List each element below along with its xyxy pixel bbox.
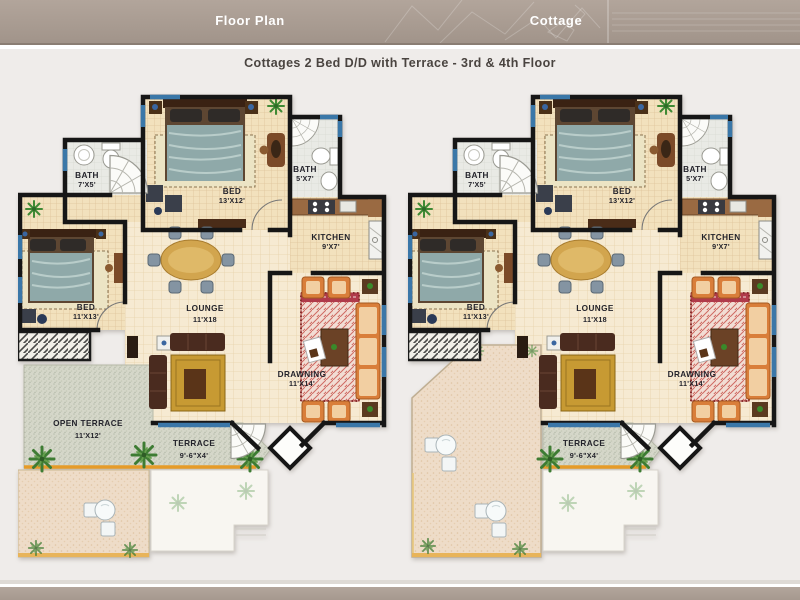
planter-ledge (408, 332, 480, 360)
bed-top-label: BED (223, 187, 242, 196)
lower-terrace-area (151, 470, 268, 551)
bath-left-label: BATH (75, 171, 99, 180)
tab-floor-plan[interactable]: Floor Plan (180, 13, 320, 28)
lower-terrace-area (543, 470, 658, 551)
armchair (302, 401, 324, 422)
open-terrace-label: OPEN TERRACE (53, 419, 123, 428)
tab-cottage[interactable]: Cottage (488, 13, 624, 28)
floor-plan-right: BED 13'X12' BATH 7'X5' BATH 5'X7' KITCHE… (408, 93, 788, 589)
armchair (718, 277, 740, 298)
coffee-table (574, 369, 596, 399)
entrance-porch (660, 428, 700, 468)
shrub-icon (123, 543, 137, 557)
palm-tree-icon (30, 447, 54, 471)
armchair (718, 401, 740, 422)
shrub-icon (513, 542, 527, 556)
palm-tree-icon (538, 447, 562, 471)
bath-right-label: BATH (683, 165, 707, 174)
floor-plan-left: BED 13'X12' BATH 7'X5' BATH 5'X7' KITCHE… (18, 93, 398, 589)
terrace-label: TERRACE (173, 439, 216, 448)
lounge-size: 11'X18 (193, 315, 217, 324)
drawing-label: DRAWNING (668, 370, 717, 379)
page: Floor Plan Cottage Cottages 2 Bed D/D wi… (0, 0, 800, 600)
fridge (369, 221, 382, 259)
kitchen-label: KITCHEN (311, 233, 350, 242)
bed-left-size: 11'X13' (463, 312, 489, 321)
bath-left-size: 7'X5' (468, 180, 486, 189)
coffee-table (184, 369, 206, 399)
stove (308, 200, 335, 214)
bath-right-size: 5'X7' (686, 174, 704, 183)
bath-left-size: 7'X5' (78, 180, 96, 189)
page-title: Cottages 2 Bed D/D with Terrace - 3rd & … (0, 56, 800, 70)
bed-left-label: BED (467, 303, 486, 312)
shrub-icon (421, 539, 435, 553)
bed-top-label: BED (613, 187, 632, 196)
bed-top-size: 13'X12' (219, 196, 245, 205)
plant-icon (268, 98, 284, 114)
drawing-size: 11'X14' (289, 379, 315, 388)
armchair (302, 277, 324, 298)
entrance-porch (270, 428, 310, 468)
bed-top-size: 13'X12' (609, 196, 635, 205)
bed-left-size: 11'X13' (73, 312, 99, 321)
kitchen-size: 9'X7' (322, 242, 340, 251)
drawing-size: 11'X14' (679, 379, 705, 388)
footer-bar (0, 584, 800, 600)
plant-icon (658, 98, 674, 114)
tv (127, 336, 138, 358)
kitchen-label: KITCHEN (701, 233, 740, 242)
lounge-label: LOUNGE (186, 304, 224, 313)
open-terrace-size: 11'X12' (75, 431, 101, 440)
plant-icon (416, 201, 432, 217)
tv (517, 336, 528, 358)
fridge (759, 221, 772, 259)
lounge-size: 11'X18 (583, 315, 607, 324)
terrace-size: 9'-6"X4' (180, 451, 208, 460)
kitchen-size: 9'X7' (712, 242, 730, 251)
header-bar: Floor Plan Cottage (0, 0, 800, 45)
sofa (170, 333, 225, 351)
palm-tree-icon (132, 443, 156, 467)
terrace-size: 9'-6"X4' (570, 451, 598, 460)
map-decoration (0, 0, 800, 43)
stove (698, 200, 725, 214)
planter-ledge (18, 332, 90, 360)
sofa (560, 333, 615, 351)
drawing-label: DRAWNING (278, 370, 327, 379)
lounge-label: LOUNGE (576, 304, 614, 313)
bed-left-label: BED (77, 303, 96, 312)
terrace-label: TERRACE (563, 439, 606, 448)
bath-left-label: BATH (465, 171, 489, 180)
sofa (539, 355, 557, 409)
armchair (692, 277, 714, 298)
sofa (149, 355, 167, 409)
bath-right-size: 5'X7' (296, 174, 314, 183)
armchair (692, 401, 714, 422)
armchair (328, 277, 350, 298)
armchair (328, 401, 350, 422)
shrub-icon (29, 541, 43, 555)
bath-right-label: BATH (293, 165, 317, 174)
plant-icon (26, 201, 42, 217)
